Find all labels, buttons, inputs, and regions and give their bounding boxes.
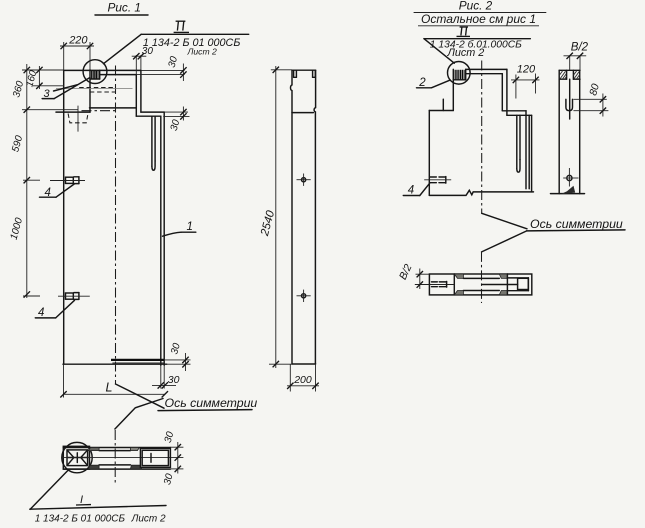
svg-text:В/2: В/2 bbox=[571, 41, 589, 53]
svg-text:2540: 2540 bbox=[259, 209, 278, 238]
svg-text:1 134-2 Б 01 000СБ: 1 134-2 Б 01 000СБ bbox=[35, 514, 126, 525]
svg-text:В/2: В/2 bbox=[397, 262, 415, 282]
svg-text:220: 220 bbox=[68, 34, 88, 46]
svg-text:Ось симметрии: Ось симметрии bbox=[530, 217, 623, 231]
svg-text:120: 120 bbox=[517, 63, 536, 75]
svg-text:30: 30 bbox=[169, 118, 183, 132]
svg-text:30: 30 bbox=[142, 46, 154, 57]
svg-text:2: 2 bbox=[418, 77, 426, 89]
svg-text:200: 200 bbox=[293, 374, 312, 386]
svg-text:Ось симметрии: Ось симметрии bbox=[165, 396, 258, 410]
svg-text:360: 360 bbox=[11, 79, 26, 98]
svg-text:1000: 1000 bbox=[9, 216, 25, 241]
svg-text:590: 590 bbox=[10, 134, 25, 153]
svg-text:Лист 2: Лист 2 bbox=[187, 46, 218, 56]
svg-text:80: 80 bbox=[587, 82, 602, 97]
svg-text:L: L bbox=[106, 381, 113, 395]
svg-text:30: 30 bbox=[163, 430, 177, 444]
svg-text:Остальное см рис 1: Остальное см рис 1 bbox=[421, 12, 536, 26]
svg-text:30: 30 bbox=[169, 342, 183, 356]
svg-text:Рис. 2: Рис. 2 bbox=[459, 0, 493, 13]
svg-text:1: 1 bbox=[187, 221, 193, 233]
svg-text:4: 4 bbox=[408, 184, 414, 196]
svg-text:30: 30 bbox=[168, 374, 180, 386]
svg-text:Лист 2: Лист 2 bbox=[131, 514, 167, 525]
svg-text:Лист 2: Лист 2 bbox=[447, 47, 485, 59]
svg-text:Рис. 1: Рис. 1 bbox=[108, 1, 141, 15]
svg-text:30: 30 bbox=[162, 472, 176, 486]
svg-text:30: 30 bbox=[167, 55, 181, 69]
